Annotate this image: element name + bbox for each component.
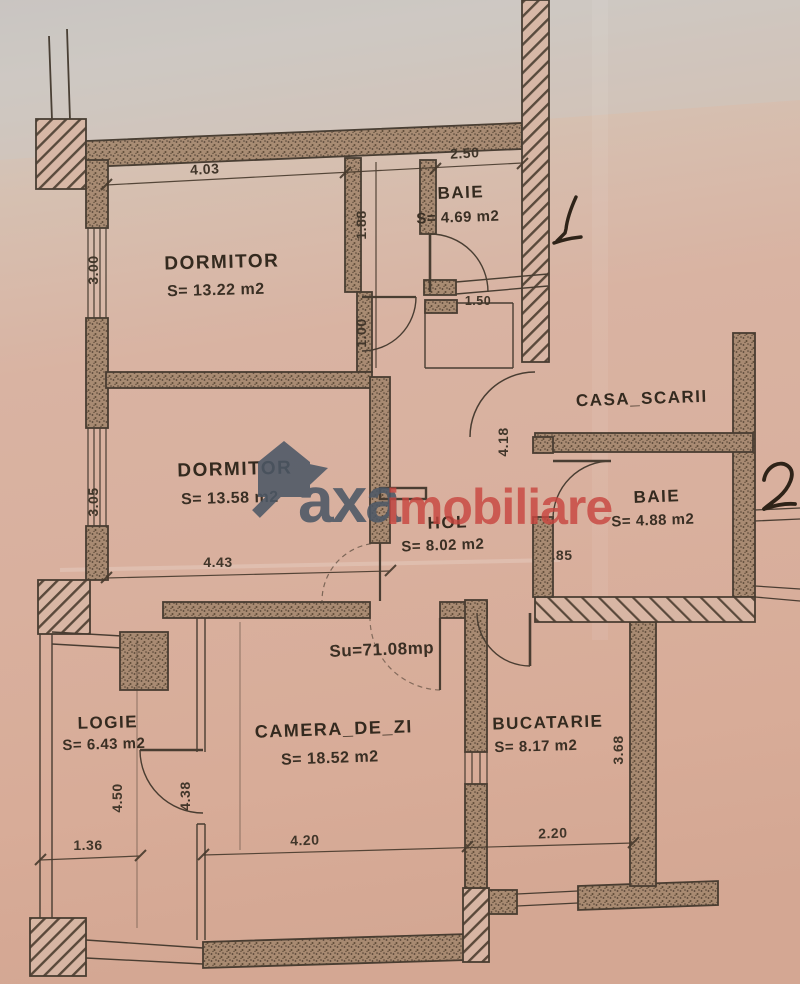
- dim-4-18: 4.18: [495, 427, 511, 456]
- dim-4-43: 4.43: [203, 554, 232, 570]
- wall-block-step: [463, 888, 489, 962]
- dim-3-68: 3.68: [610, 735, 626, 764]
- wall-kitchen-right: [630, 622, 656, 886]
- wall-block-left-mid: [38, 580, 90, 634]
- wall-bottom-kitchen-stub: [489, 890, 517, 914]
- dim-1-50: 1.50: [465, 294, 491, 308]
- floor-plan-scan: 4.03 2.50 1.88 1.00 3.00 3.05 4.43 1.50 …: [0, 0, 800, 984]
- dim-1-36: 1.36: [73, 837, 102, 853]
- total-usable-area: Su=71.08mp: [329, 638, 434, 661]
- wall-right-exterior: [733, 333, 755, 597]
- wall-block-top-left: [36, 119, 86, 189]
- svg-text:DORMITOR: DORMITOR: [164, 250, 280, 274]
- wall-dormitor-divider: [106, 372, 372, 388]
- svg-text:LOGIE: LOGIE: [77, 712, 138, 733]
- watermark-brand-suffix: imobiliare: [386, 479, 612, 535]
- wall-hol-camera-left: [163, 602, 370, 618]
- wall-left-pier-3: [86, 526, 108, 580]
- wall-left-pier-2: [86, 318, 108, 428]
- dim-3-05: 3.05: [85, 487, 101, 516]
- dim-1-00: 1.00: [353, 318, 369, 347]
- wall-baie2-left-top: [533, 437, 553, 453]
- svg-text:BUCATARIE: BUCATARIE: [492, 712, 604, 734]
- dim-4-50: 4.50: [109, 783, 125, 812]
- svg-text:S= 6.43 m2: S= 6.43 m2: [62, 735, 145, 754]
- dim-4-38: 4.38: [177, 781, 193, 810]
- wall-kitchen-left-bottom: [465, 784, 487, 888]
- dim-3-00: 3.00: [85, 255, 101, 284]
- wall-kitchen-left-top: [465, 600, 487, 752]
- svg-text:S= 4.69 m2: S= 4.69 m2: [416, 208, 500, 228]
- wall-casascarii-baie2: [535, 433, 753, 452]
- dim-4-03: 4.03: [190, 160, 220, 178]
- svg-text:S= 4.88 m2: S= 4.88 m2: [611, 511, 695, 531]
- wall-left-pier-1: [86, 160, 108, 228]
- dim-4-20: 4.20: [290, 831, 320, 848]
- wall-pier-logie: [120, 632, 168, 690]
- dim-2-20: 2.20: [538, 824, 568, 841]
- svg-text:S= 18.52 m2: S= 18.52 m2: [281, 748, 379, 768]
- svg-text:S= 8.02 m2: S= 8.02 m2: [401, 536, 485, 556]
- svg-text:BAIE: BAIE: [437, 182, 484, 203]
- wall-baie2-bottom: [535, 597, 755, 622]
- svg-text:BAIE: BAIE: [633, 486, 680, 507]
- wall-block-bottom-left: [30, 918, 86, 976]
- closet-wall-stub: [425, 300, 457, 313]
- floorplan-svg: 4.03 2.50 1.88 1.00 3.00 3.05 4.43 1.50 …: [0, 0, 800, 984]
- dim-1-88: 1.88: [353, 210, 369, 239]
- svg-text:S= 8.17 m2: S= 8.17 m2: [494, 737, 577, 756]
- paper-crease-vertical: [592, 0, 608, 640]
- dim-0-85: .85: [552, 547, 573, 563]
- svg-text:S= 13.22 m2: S= 13.22 m2: [167, 281, 265, 301]
- wall-right-hatched: [522, 0, 549, 362]
- dim-2-50: 2.50: [450, 144, 480, 162]
